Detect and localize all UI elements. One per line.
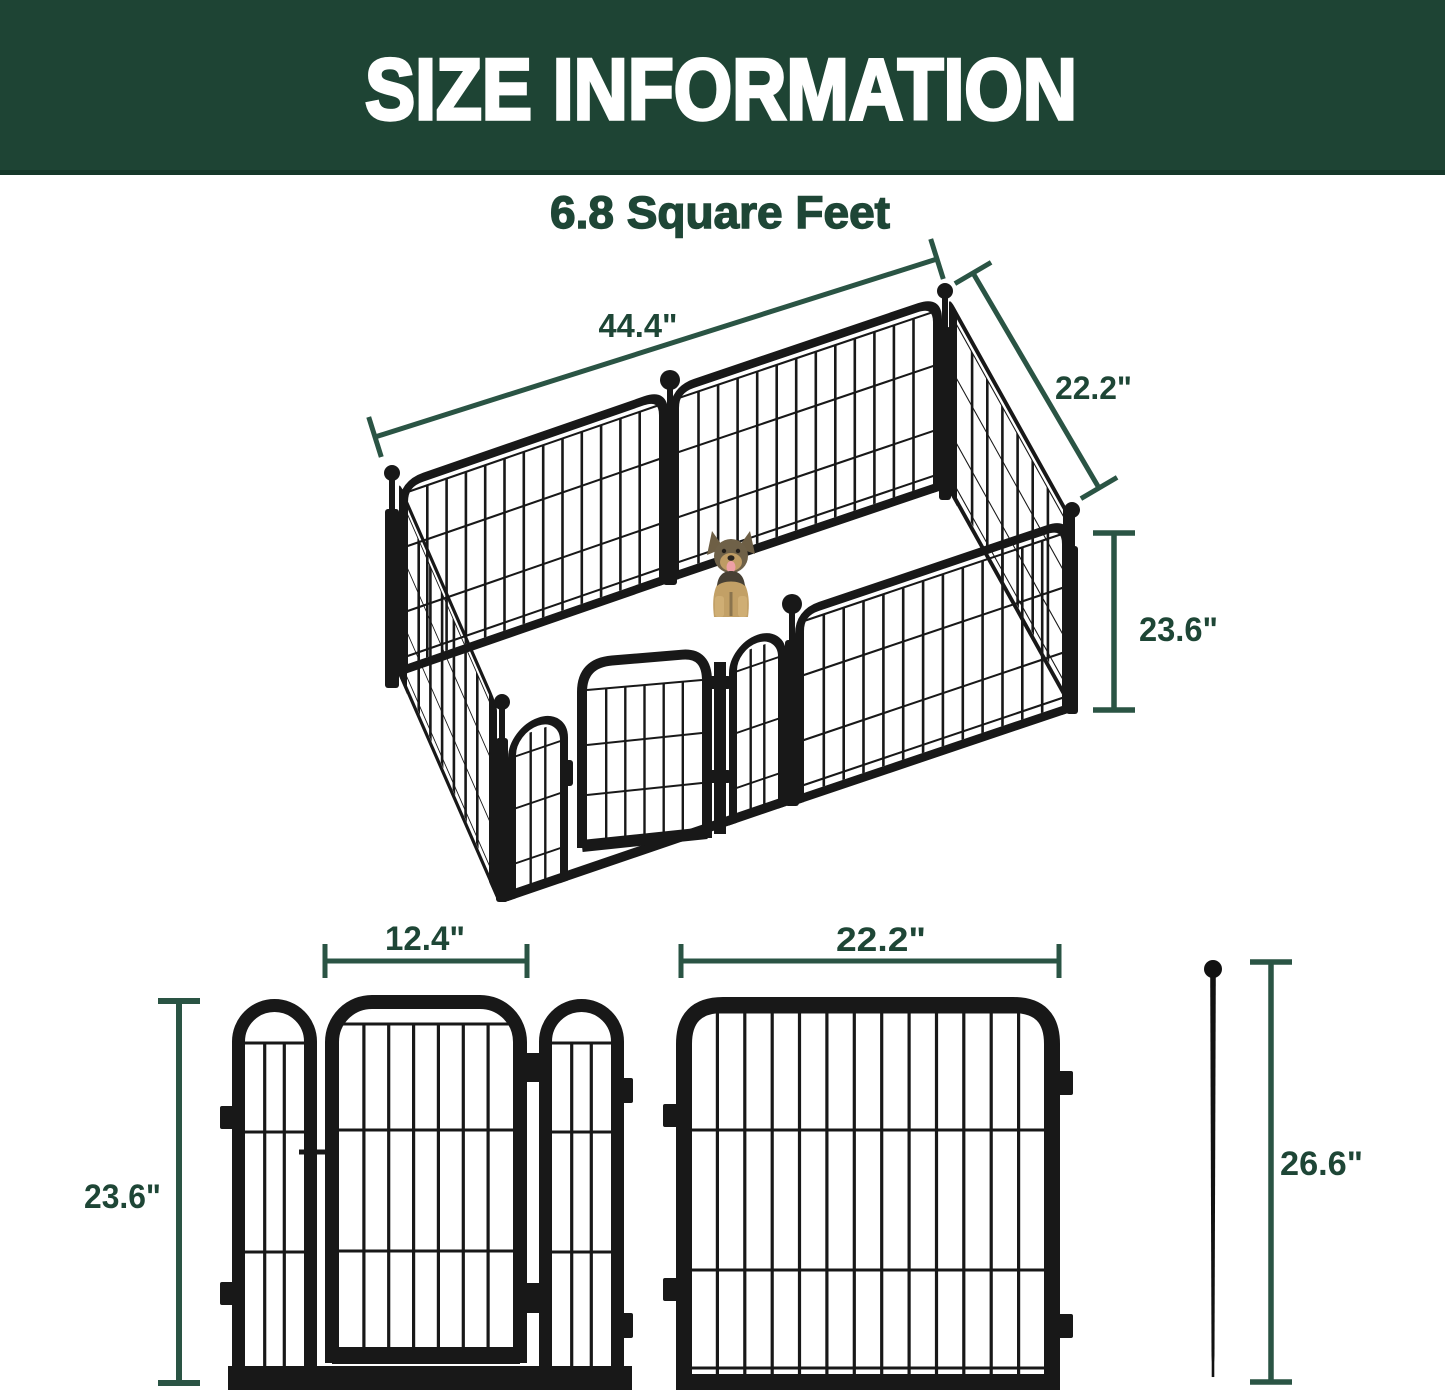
svg-text:6.8 Square Feet: 6.8 Square Feet <box>550 187 890 238</box>
svg-text:23.6": 23.6" <box>84 1178 161 1216</box>
svg-text:SIZE INFORMATION: SIZE INFORMATION <box>365 42 1077 138</box>
svg-text:12.4": 12.4" <box>385 920 465 958</box>
svg-text:23.6": 23.6" <box>1139 611 1218 649</box>
svg-text:22.2": 22.2" <box>836 921 926 959</box>
svg-text:26.6": 26.6" <box>1280 1145 1363 1183</box>
svg-text:22.2": 22.2" <box>1055 370 1132 406</box>
svg-text:44.4": 44.4" <box>599 307 678 344</box>
